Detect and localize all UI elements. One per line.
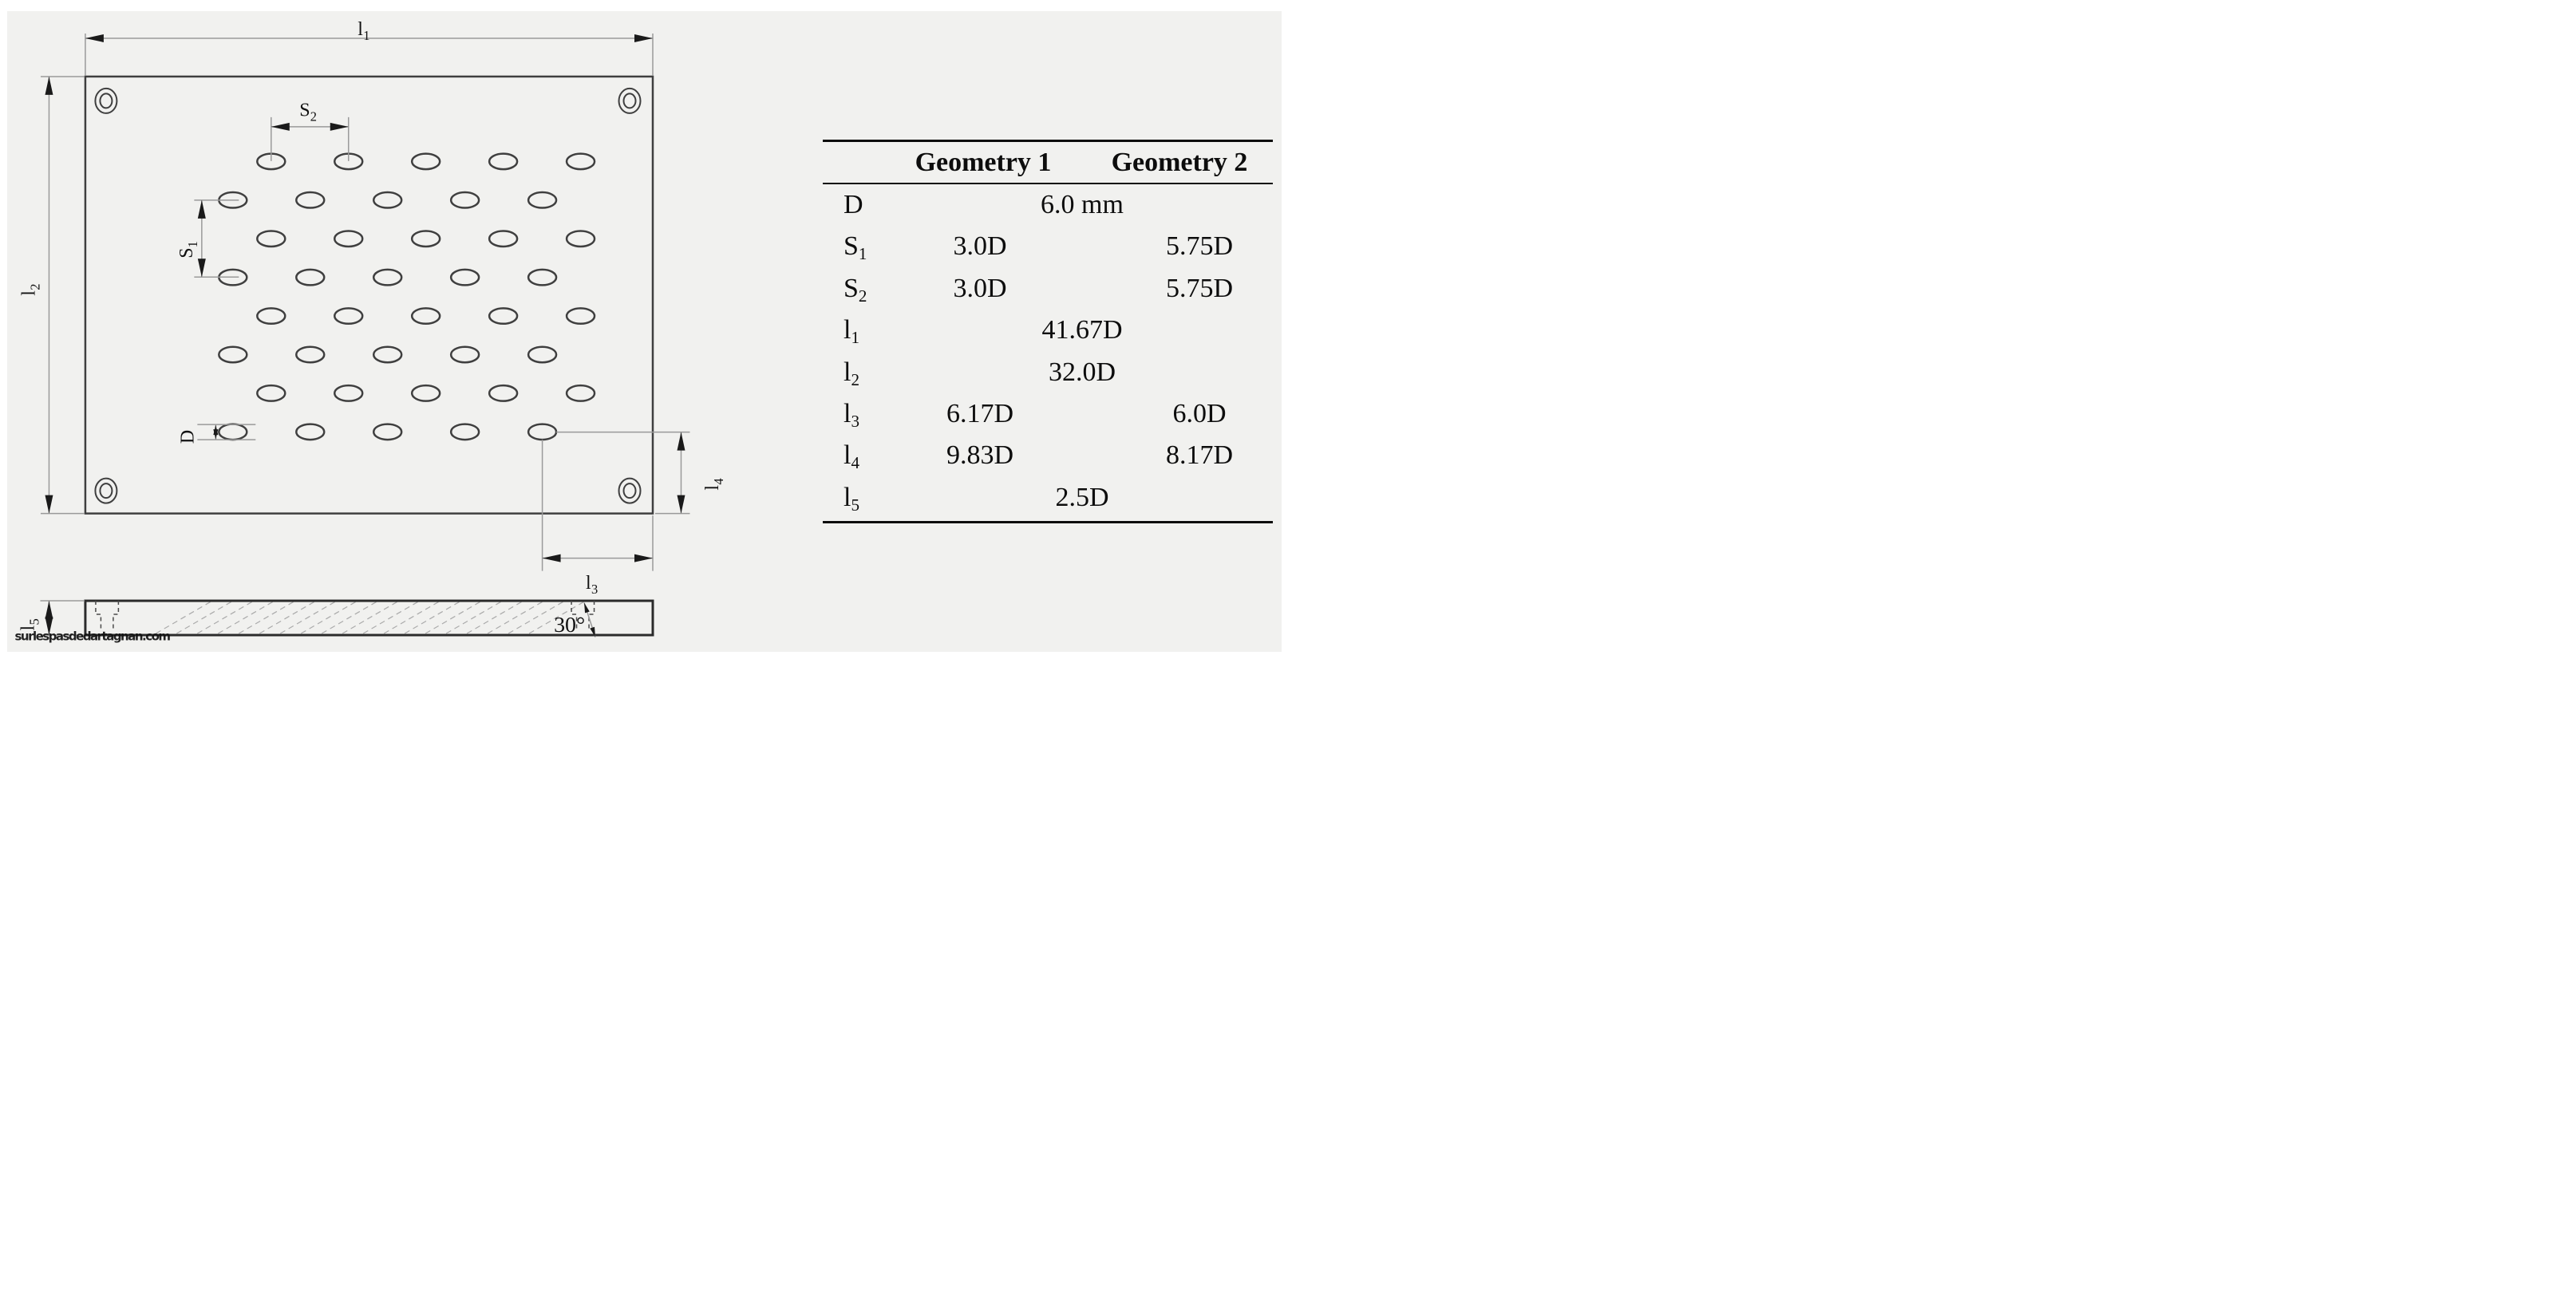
mounting-hole-outer — [95, 479, 117, 503]
hatch-line — [197, 602, 252, 633]
plate-hole — [373, 424, 401, 440]
plate-hole — [334, 231, 362, 246]
dim-l1: l 1 — [85, 19, 653, 76]
plate-hole — [412, 231, 440, 246]
plate-hole — [296, 270, 324, 285]
dim-label-s1-sub: 1 — [185, 241, 200, 247]
figure-page: l 1 l 2 S 2 S 1 — [0, 0, 1288, 657]
dim-label-l5-sub: 5 — [26, 618, 41, 625]
plate-hole — [373, 347, 401, 362]
plate-hole — [451, 347, 479, 362]
dim-label-l2-sub: 2 — [27, 284, 42, 290]
section-hatching — [156, 602, 584, 633]
dim-label-l1: l — [358, 19, 363, 40]
dim-label-l3: l — [586, 573, 591, 594]
plate-hole — [528, 192, 556, 207]
hole-pattern — [219, 154, 595, 440]
plate-hole — [412, 308, 440, 323]
hatch-line — [342, 602, 397, 633]
dim-label-l2: l — [18, 290, 39, 296]
hatch-line — [280, 602, 335, 633]
mounting-hole-outer — [95, 89, 117, 113]
plate-hole — [489, 231, 517, 246]
hatch-line — [322, 602, 377, 633]
mounting-hole-inner — [624, 93, 636, 108]
plate-hole — [296, 192, 324, 207]
hatch-line — [446, 602, 501, 633]
hatch-line — [405, 602, 460, 633]
plate-hole — [528, 270, 556, 285]
section-view: 30° — [85, 601, 653, 637]
dim-s1: S 1 — [176, 200, 239, 277]
counterbore-left — [96, 601, 118, 630]
table-row-l2: l2 32.0D — [823, 352, 1273, 393]
plate-hole — [451, 270, 479, 285]
plate-hole — [567, 154, 595, 169]
plate-hole — [373, 270, 401, 285]
mounting-hole-outer — [619, 89, 641, 113]
plate-hole — [373, 192, 401, 207]
table-row-s1: S1 3.0D 5.75D — [823, 226, 1273, 267]
mounting-hole-inner — [624, 483, 636, 498]
dim-label-l4-sub: 4 — [711, 478, 726, 484]
plate-hole — [567, 308, 595, 323]
dim-label-d: D — [177, 430, 198, 444]
mounting-hole-inner — [100, 93, 112, 108]
plate-hole — [451, 192, 479, 207]
angle-arrow — [584, 603, 595, 637]
plate-hole — [257, 231, 285, 246]
mounting-hole-outer — [619, 479, 641, 503]
hatch-line — [259, 602, 314, 633]
dim-s2: S 2 — [271, 100, 349, 160]
plate-hole — [489, 308, 517, 323]
plate-hole — [489, 154, 517, 169]
dim-label-s1: S — [176, 247, 197, 258]
watermark-text: surlespasdedartagnan.com — [14, 629, 170, 644]
table-row-l3: l3 6.17D 6.0D — [823, 393, 1273, 435]
plate-hole — [296, 347, 324, 362]
plate-hole — [451, 424, 479, 440]
plate-hole — [219, 424, 247, 440]
plate-hole — [257, 308, 285, 323]
hatch-line — [467, 602, 522, 633]
header-geometry-2: Geometry 2 — [1112, 148, 1248, 178]
plate-hole — [334, 308, 362, 323]
dim-label-s2: S — [299, 100, 310, 120]
plate-hole — [296, 424, 324, 440]
hatch-line — [488, 602, 543, 633]
plate-hole — [528, 347, 556, 362]
geometry-table-header: Geometry 1 Geometry 2 — [823, 142, 1273, 184]
hatch-line — [176, 602, 231, 633]
dim-l2: l 2 — [18, 77, 84, 514]
hatch-line — [363, 602, 418, 633]
plate-outline — [85, 77, 653, 514]
dim-l4: l 4 — [556, 432, 726, 514]
plate-plan-view — [85, 77, 653, 514]
table-row-l4: l4 9.83D 8.17D — [823, 435, 1273, 476]
table-row-l1: l1 41.67D — [823, 310, 1273, 351]
geometry-table-body: D 6.0 mm S1 3.0D 5.75D S2 3.0D 5.75D l1 — [823, 184, 1273, 519]
plate-hole — [567, 231, 595, 246]
hatch-line — [239, 602, 294, 633]
dim-label-l3-sub: 3 — [591, 582, 598, 597]
plate-hole — [334, 385, 362, 401]
table-row-l5: l5 2.5D — [823, 477, 1273, 519]
plate-hole — [412, 154, 440, 169]
plate-hole — [219, 347, 247, 362]
dim-l3: l 3 — [543, 440, 653, 597]
plate-hole — [257, 385, 285, 401]
hatch-line — [384, 602, 439, 633]
plate-hole — [528, 424, 556, 440]
angle-label: 30° — [554, 613, 585, 637]
hatch-line — [218, 602, 273, 633]
header-geometry-1: Geometry 1 — [915, 148, 1052, 178]
dim-label-s2-sub: 2 — [310, 109, 317, 124]
table-row-d: D 6.0 mm — [823, 184, 1273, 226]
mounting-hole-inner — [100, 483, 112, 498]
plate-hole — [412, 385, 440, 401]
plate-hole — [567, 385, 595, 401]
hatch-line — [301, 602, 356, 633]
hatch-line — [425, 602, 480, 633]
dim-label-l1-sub: 1 — [363, 28, 369, 43]
geometry-table: Geometry 1 Geometry 2 D 6.0 mm S1 3.0D 5… — [823, 140, 1273, 523]
table-row-s2: S2 3.0D 5.75D — [823, 268, 1273, 310]
plate-hole — [489, 385, 517, 401]
dim-label-l4: l — [702, 485, 723, 491]
